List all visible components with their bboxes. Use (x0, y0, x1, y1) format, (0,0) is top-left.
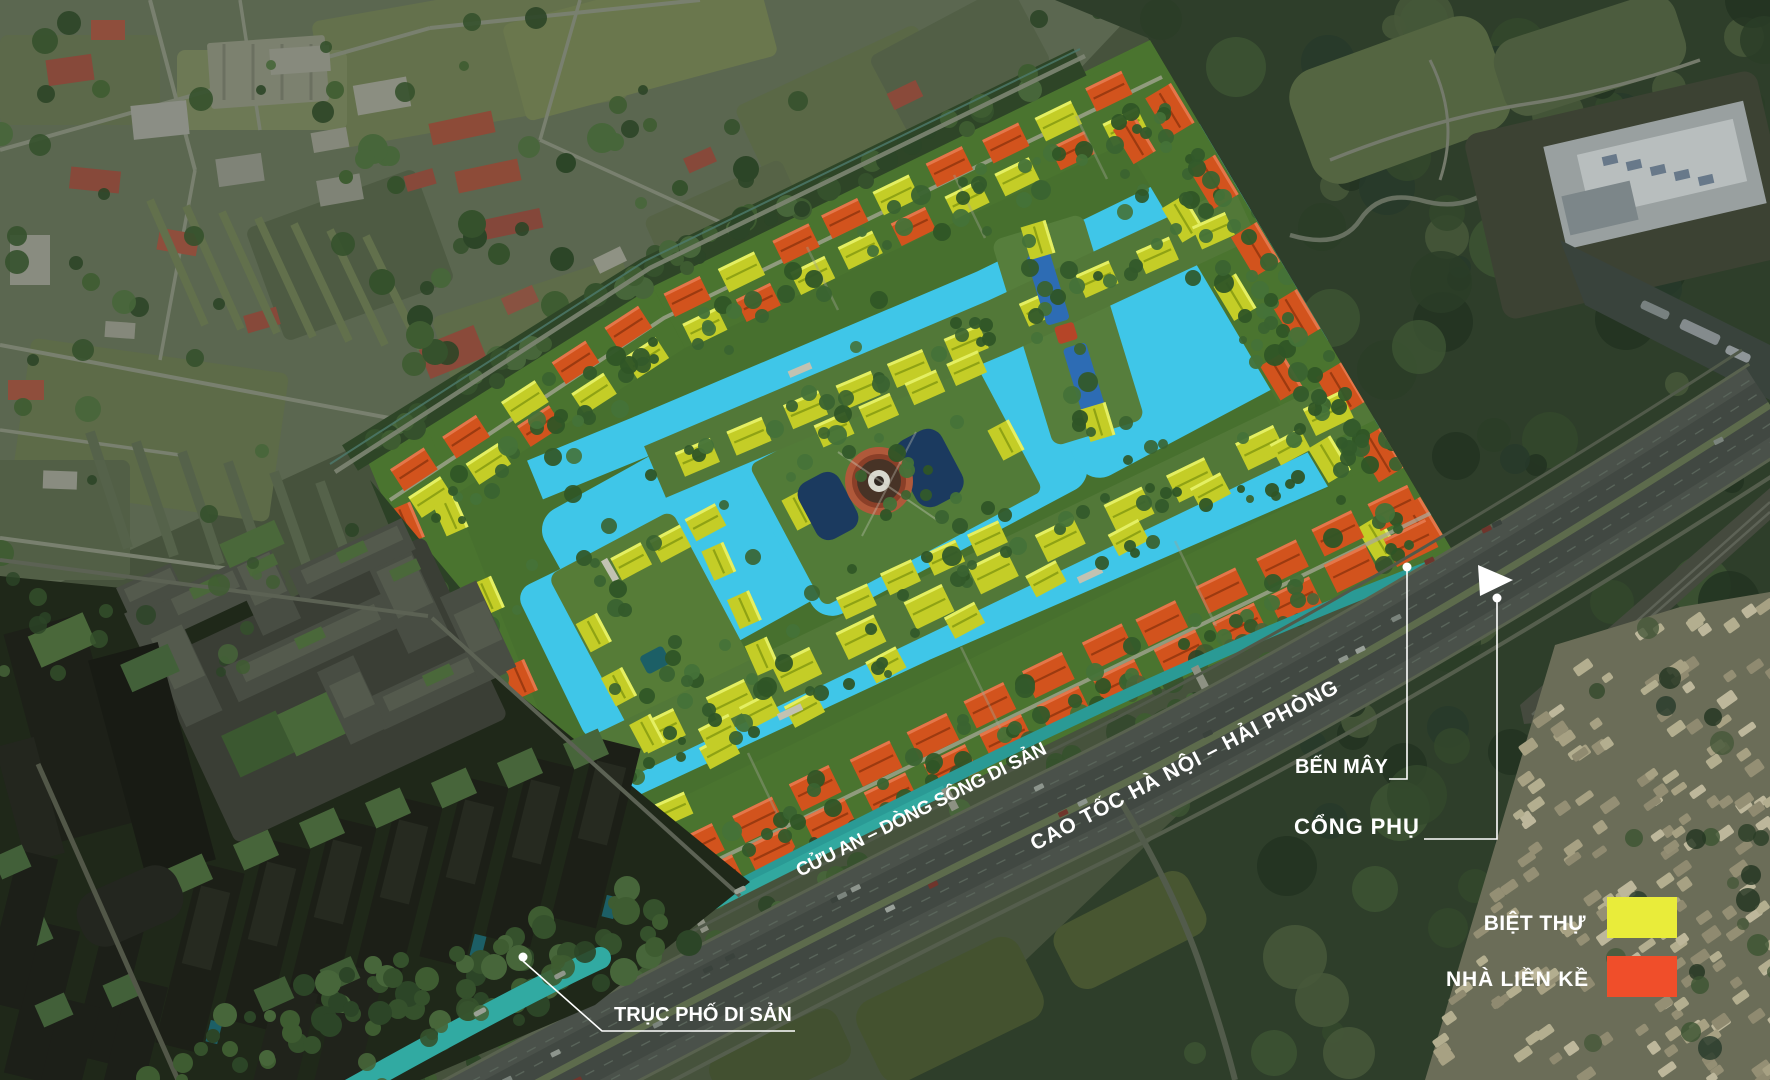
svg-text:BẾN MÂY: BẾN MÂY (1295, 754, 1388, 778)
svg-text:CỔNG PHỤ: CỔNG PHỤ (1294, 814, 1420, 839)
svg-text:TRỤC PHỐ DI SẢN: TRỤC PHỐ DI SẢN (614, 1002, 792, 1026)
svg-text:NHÀ LIỀN KỀ: NHÀ LIỀN KỀ (1446, 968, 1589, 991)
svg-text:BIỆT THỰ: BIỆT THỰ (1484, 911, 1586, 935)
